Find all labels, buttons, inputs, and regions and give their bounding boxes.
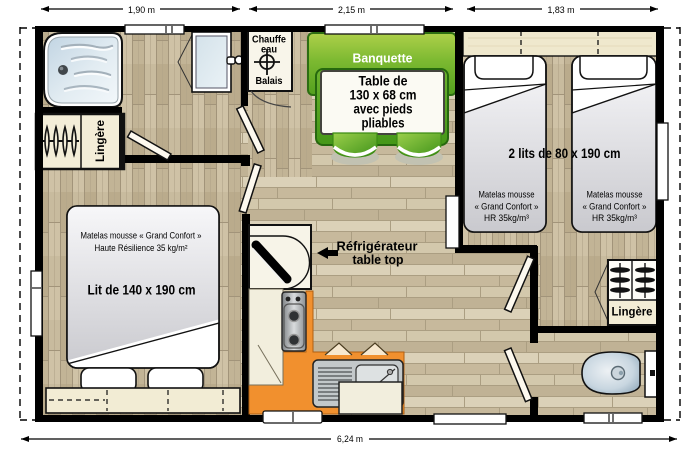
svg-text:Balais: Balais: [256, 75, 283, 87]
svg-text:Lingère: Lingère: [93, 120, 107, 162]
svg-text:eau: eau: [261, 44, 277, 56]
svg-text:Matelas mousse: Matelas mousse: [479, 190, 535, 200]
svg-text:Matelas mousse: Matelas mousse: [587, 190, 643, 200]
svg-text:« Grand Confort »: « Grand Confort »: [583, 202, 647, 212]
svg-text:2 lits de 80 x 190 cm: 2 lits de 80 x 190 cm: [509, 146, 621, 161]
svg-text:pliables: pliables: [362, 116, 405, 131]
svg-text:avec pieds: avec pieds: [354, 102, 413, 117]
svg-text:Lit de 140 x 190 cm: Lit de 140 x 190 cm: [88, 283, 196, 298]
svg-text:Matelas mousse « Grand Confort: Matelas mousse « Grand Confort »: [81, 231, 202, 241]
svg-text:130 x 68 cm: 130 x 68 cm: [350, 88, 417, 103]
svg-text:1,90 m: 1,90 m: [128, 5, 155, 16]
svg-text:6,24 m: 6,24 m: [337, 434, 363, 445]
svg-text:« Grand Confort »: « Grand Confort »: [475, 202, 539, 212]
svg-text:2,15 m: 2,15 m: [338, 5, 365, 16]
svg-text:Banquette: Banquette: [353, 51, 413, 66]
svg-text:HR 35kg/m³: HR 35kg/m³: [592, 213, 637, 223]
svg-text:table top: table top: [353, 252, 404, 267]
svg-text:Haute Résilience 35 kg/m²: Haute Résilience 35 kg/m²: [95, 243, 188, 253]
svg-text:HR 35kg/m³: HR 35kg/m³: [484, 213, 529, 223]
svg-text:1,83 m: 1,83 m: [548, 5, 575, 16]
svg-text:Table de: Table de: [359, 74, 408, 89]
svg-text:Lingère: Lingère: [612, 307, 653, 319]
